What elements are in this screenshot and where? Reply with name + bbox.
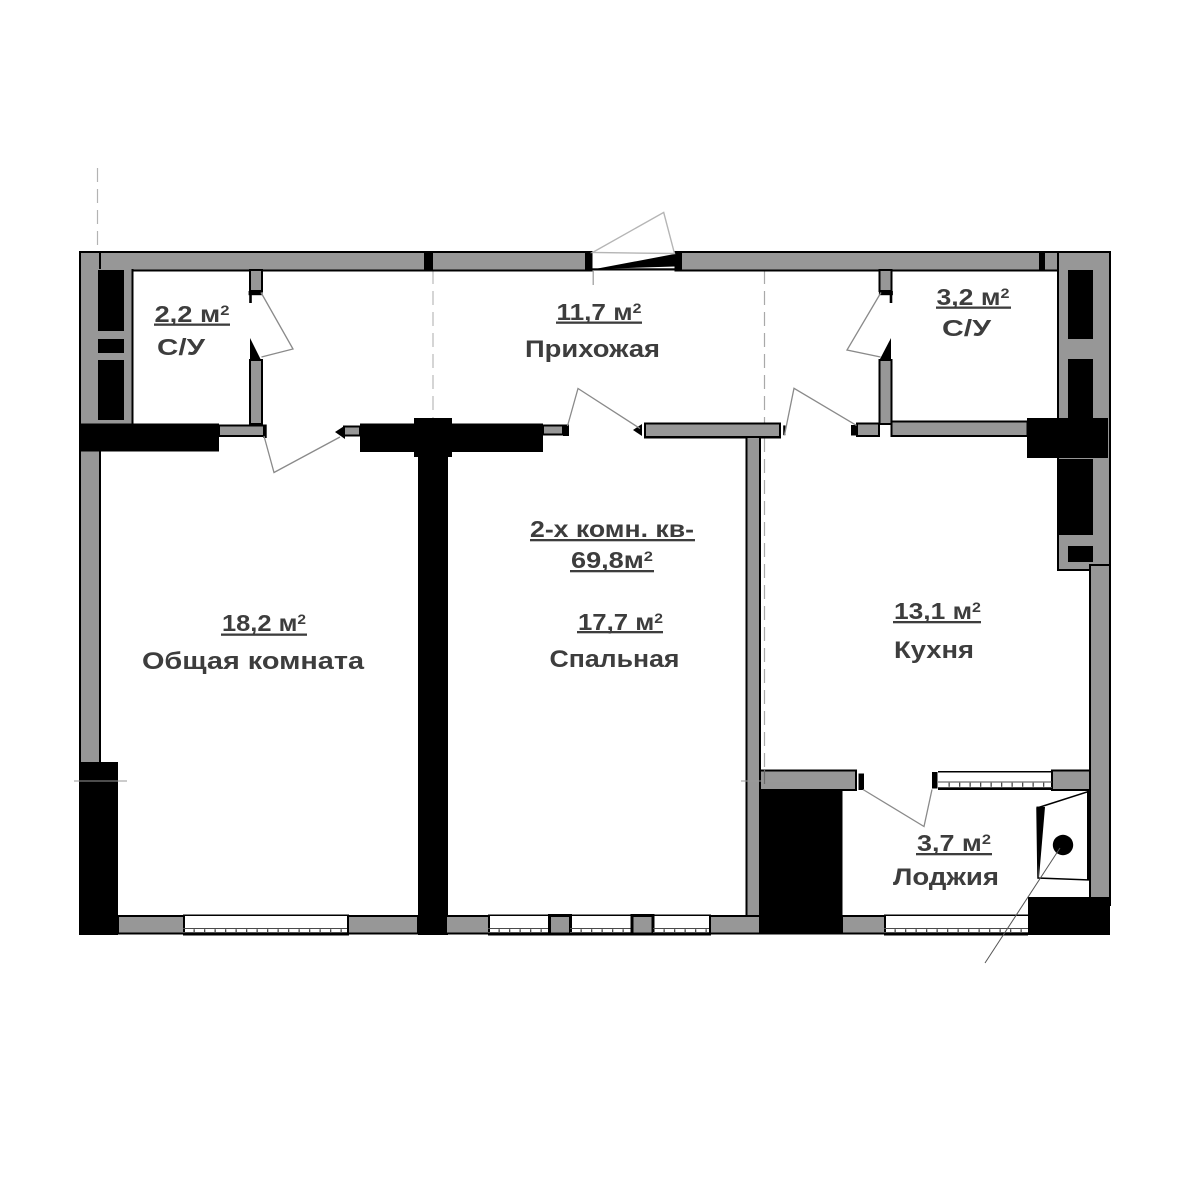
svg-text:Кухня: Кухня [894,637,974,664]
svg-text:11,7 м2: 11,7 м2 [557,299,642,325]
svg-text:69,8м2: 69,8м2 [571,547,653,573]
svg-text:С/У: С/У [157,334,205,360]
svg-text:13,1 м2: 13,1 м2 [894,598,981,624]
svg-text:Прихожая: Прихожая [525,336,660,363]
svg-text:Общая комната: Общая комната [142,648,365,675]
svg-text:С/У: С/У [942,315,991,341]
svg-text:2-х комн. кв-: 2-х комн. кв- [530,516,694,542]
svg-text:Спальная: Спальная [550,646,680,673]
svg-text:2,2 м2: 2,2 м2 [155,301,230,327]
svg-text:18,2 м2: 18,2 м2 [222,610,306,636]
svg-text:Лоджия: Лоджия [893,864,999,891]
svg-text:3,2 м2: 3,2 м2 [937,284,1010,310]
svg-text:3,7 м2: 3,7 м2 [917,830,991,856]
